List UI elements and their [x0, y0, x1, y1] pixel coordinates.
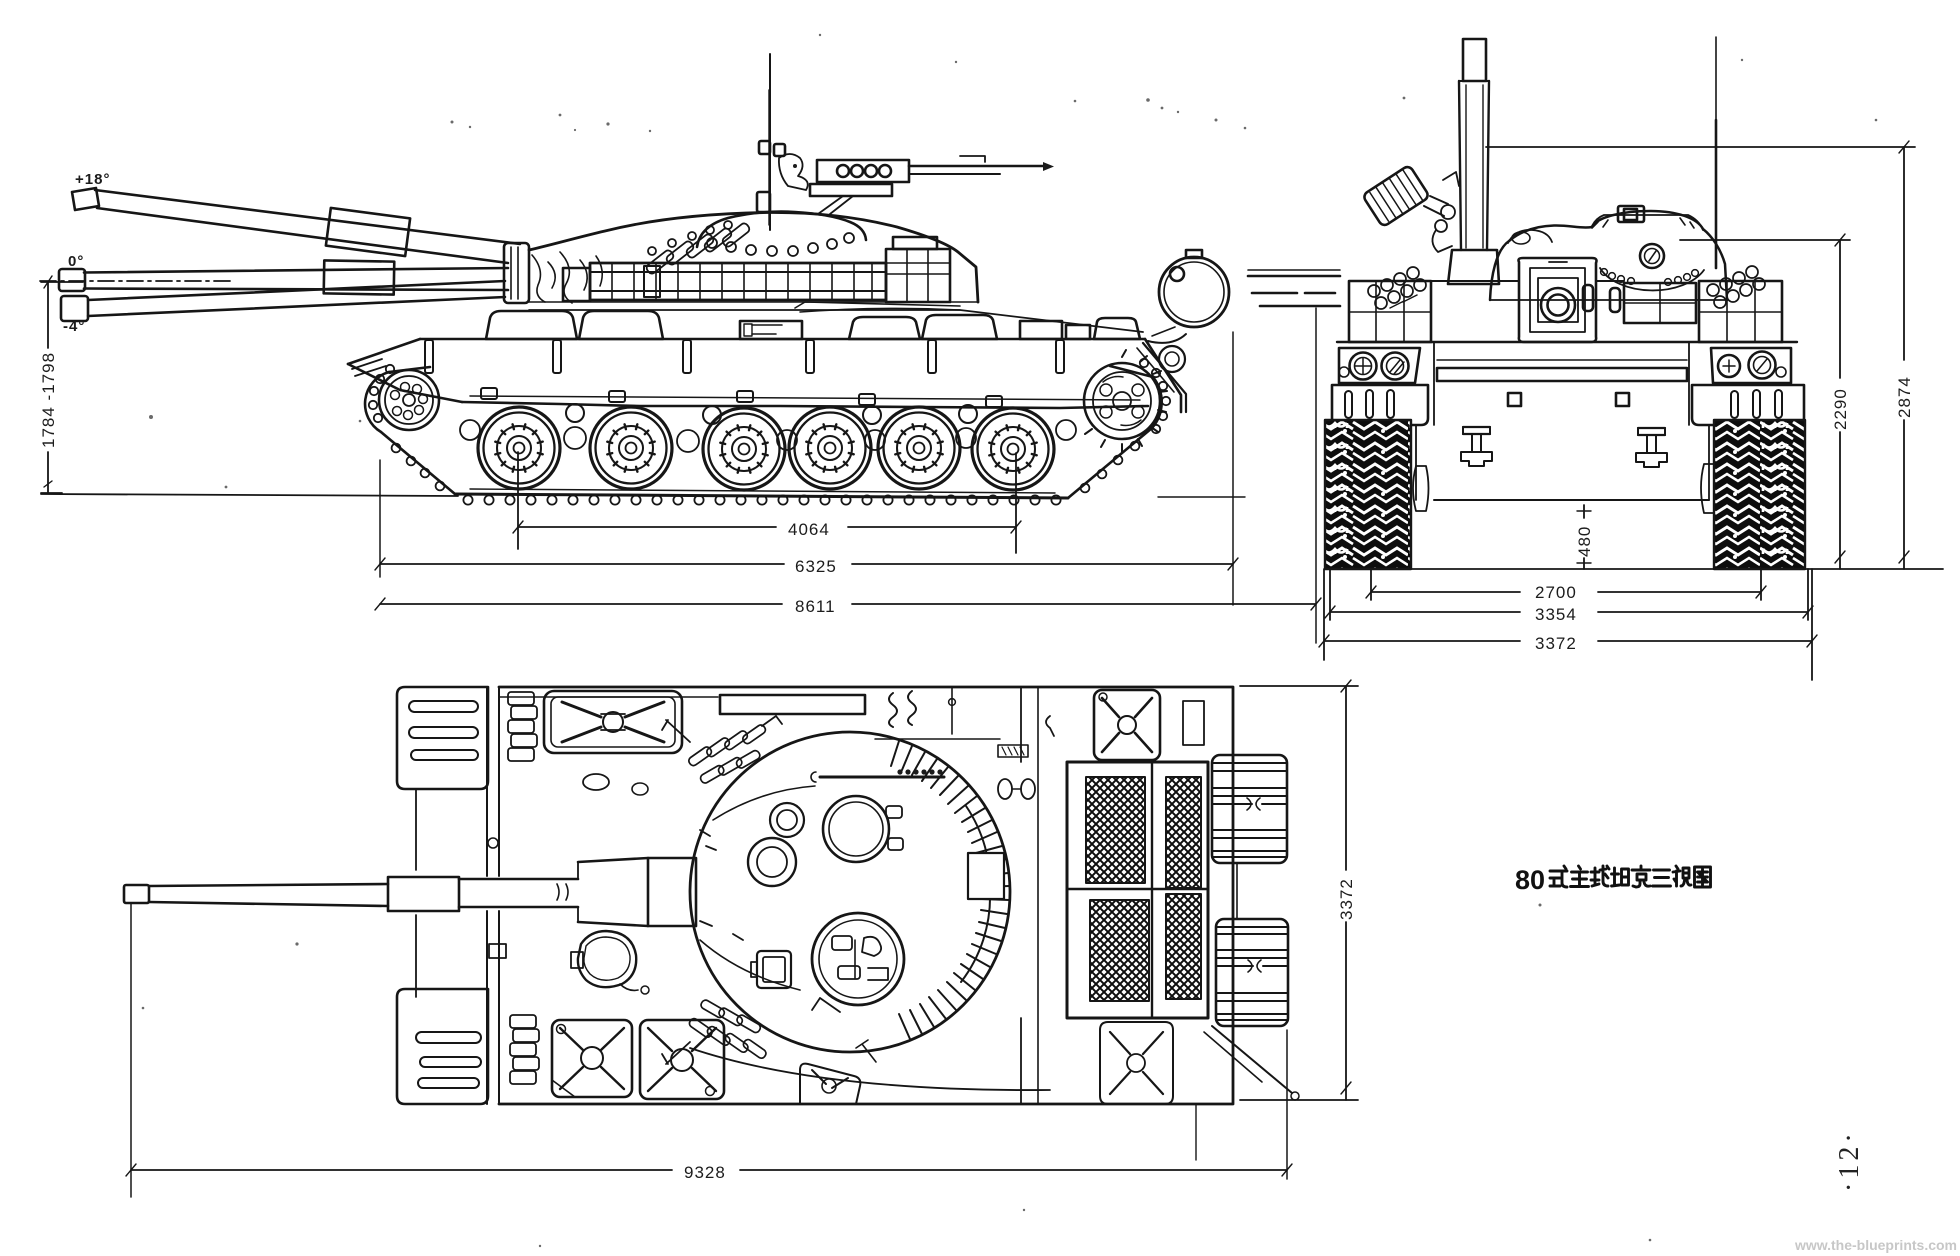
svg-text:1784 -1798: 1784 -1798 [39, 352, 58, 448]
svg-text:2874: 2874 [1895, 376, 1914, 418]
svg-text:2290: 2290 [1831, 388, 1850, 430]
svg-text:480: 480 [1575, 526, 1594, 557]
svg-text:3372: 3372 [1337, 878, 1356, 920]
svg-text:4064: 4064 [788, 520, 830, 539]
svg-text:3372: 3372 [1535, 634, 1577, 653]
svg-text:2700: 2700 [1535, 583, 1577, 602]
svg-text:9328: 9328 [684, 1163, 726, 1182]
svg-text:-4°: -4° [63, 318, 85, 335]
svg-text:6325: 6325 [795, 557, 837, 576]
svg-text:0°: 0° [68, 253, 84, 270]
svg-text:8611: 8611 [795, 597, 836, 616]
svg-text:80: 80 [1515, 865, 1545, 895]
svg-text:+18°: +18° [75, 171, 110, 188]
svg-text:www.the-blueprints.com: www.the-blueprints.com [1794, 1237, 1957, 1253]
svg-text:·12·: ·12· [1834, 1129, 1865, 1192]
svg-text:3354: 3354 [1535, 605, 1577, 624]
